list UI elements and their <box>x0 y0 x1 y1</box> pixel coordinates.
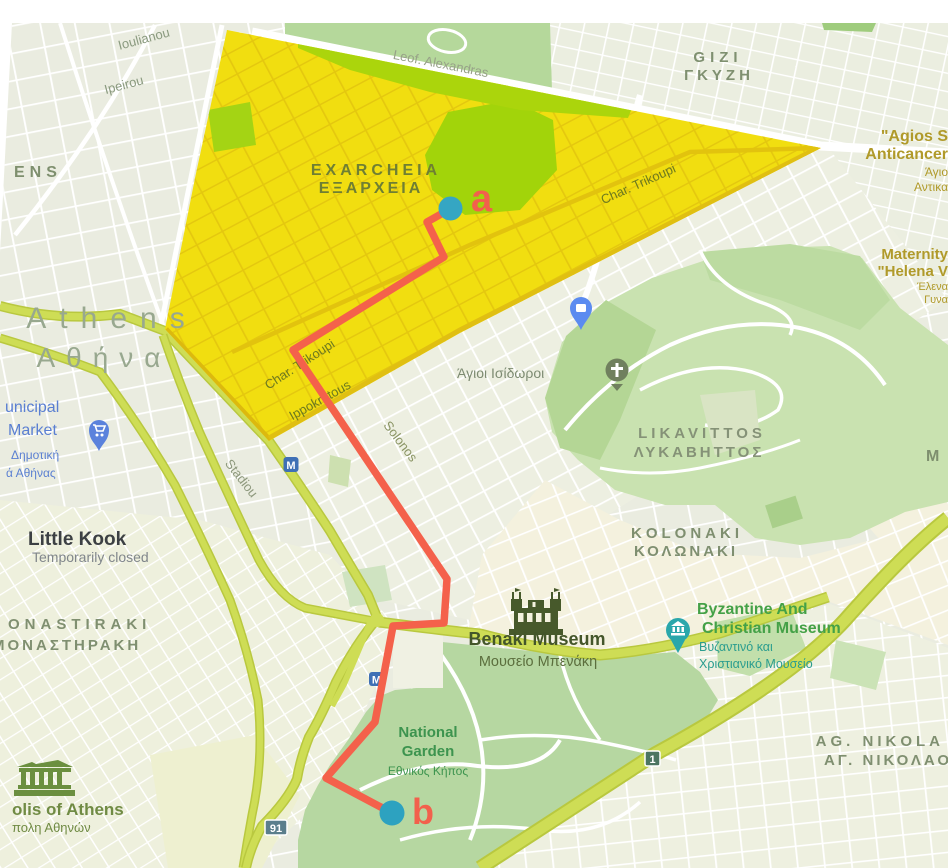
svg-text:Δημοτική: Δημοτική <box>11 448 59 462</box>
svg-text:Χριστιανικό Μουσείο: Χριστιανικό Μουσείο <box>699 657 813 671</box>
svg-text:KOLONAKI: KOLONAKI <box>631 525 743 542</box>
svg-text:AG. NIKOLA: AG. NIKOLA <box>816 733 944 750</box>
svg-text:Βυζαντινό και: Βυζαντινό και <box>699 640 773 654</box>
svg-text:unicipal: unicipal <box>5 399 59 416</box>
svg-text:Garden: Garden <box>402 743 455 760</box>
svg-text:Έλενα: Έλενα <box>916 281 948 293</box>
svg-text:Αθήνα: Αθήνα <box>36 342 171 373</box>
svg-text:Little Kook: Little Kook <box>28 529 127 550</box>
svg-text:GIZI: GIZI <box>693 49 742 66</box>
svg-text:ΛΥΚΑΒΗΤΤΟΣ: ΛΥΚΑΒΗΤΤΟΣ <box>634 444 765 461</box>
svg-text:Christian Museum: Christian Museum <box>702 620 841 637</box>
svg-text:EXARCHEIA: EXARCHEIA <box>311 162 441 179</box>
svg-text:Maternity: Maternity <box>881 246 948 263</box>
svg-text:1: 1 <box>649 754 655 766</box>
svg-text:Αντικα: Αντικα <box>914 180 948 194</box>
svg-text:91: 91 <box>270 823 282 835</box>
svg-text:Anticancer: Anticancer <box>865 146 948 163</box>
svg-text:Μουσείο Μπενάκη: Μουσείο Μπενάκη <box>479 654 597 670</box>
svg-text:Benaki Museum: Benaki Museum <box>468 629 605 649</box>
svg-text:Athens: Athens <box>26 302 197 335</box>
svg-text:National: National <box>398 724 457 741</box>
svg-text:"Helena V: "Helena V <box>878 263 948 280</box>
svg-text:ά Αθήνας: ά Αθήνας <box>6 466 56 480</box>
svg-text:ΚΟΛΩΝΑΚΙ: ΚΟΛΩΝΑΚΙ <box>634 543 738 560</box>
svg-text:olis of Athens: olis of Athens <box>12 800 124 819</box>
svg-text:Γυνα: Γυνα <box>924 294 948 306</box>
svg-text:M: M <box>926 448 939 465</box>
svg-text:ENS: ENS <box>14 164 62 181</box>
svg-text:Byzantine And: Byzantine And <box>697 601 808 618</box>
svg-text:Άγιοι Ισίδωροι: Άγιοι Ισίδωροι <box>457 365 544 381</box>
svg-text:b: b <box>412 791 434 832</box>
svg-text:ΜΟΝΑΣΤΗΡΑΚΗ: ΜΟΝΑΣΤΗΡΑΚΗ <box>0 637 141 654</box>
svg-text:ΕΞΑΡΧΕΙΑ: ΕΞΑΡΧΕΙΑ <box>319 180 424 197</box>
svg-text:ΓΚΥΖΗ: ΓΚΥΖΗ <box>684 67 754 84</box>
svg-text:Temporarily closed: Temporarily closed <box>32 549 149 565</box>
svg-text:"Agios S: "Agios S <box>881 128 948 145</box>
svg-text:Εθνικός Κήπος: Εθνικός Κήπος <box>388 764 468 778</box>
svg-text:ΑΓ. ΝΙΚΟΛΑΟ: ΑΓ. ΝΙΚΟΛΑΟ <box>824 752 948 769</box>
svg-text:LIKAVITTOS: LIKAVITTOS <box>638 425 766 442</box>
svg-text:ONASTIRAKI: ONASTIRAKI <box>8 616 151 633</box>
svg-text:πολη Αθηνών: πολη Αθηνών <box>12 820 91 835</box>
svg-text:a: a <box>471 178 493 220</box>
svg-text:Άγιο: Άγιο <box>925 165 948 179</box>
svg-text:Market: Market <box>8 422 57 439</box>
svg-text:M: M <box>286 460 295 472</box>
